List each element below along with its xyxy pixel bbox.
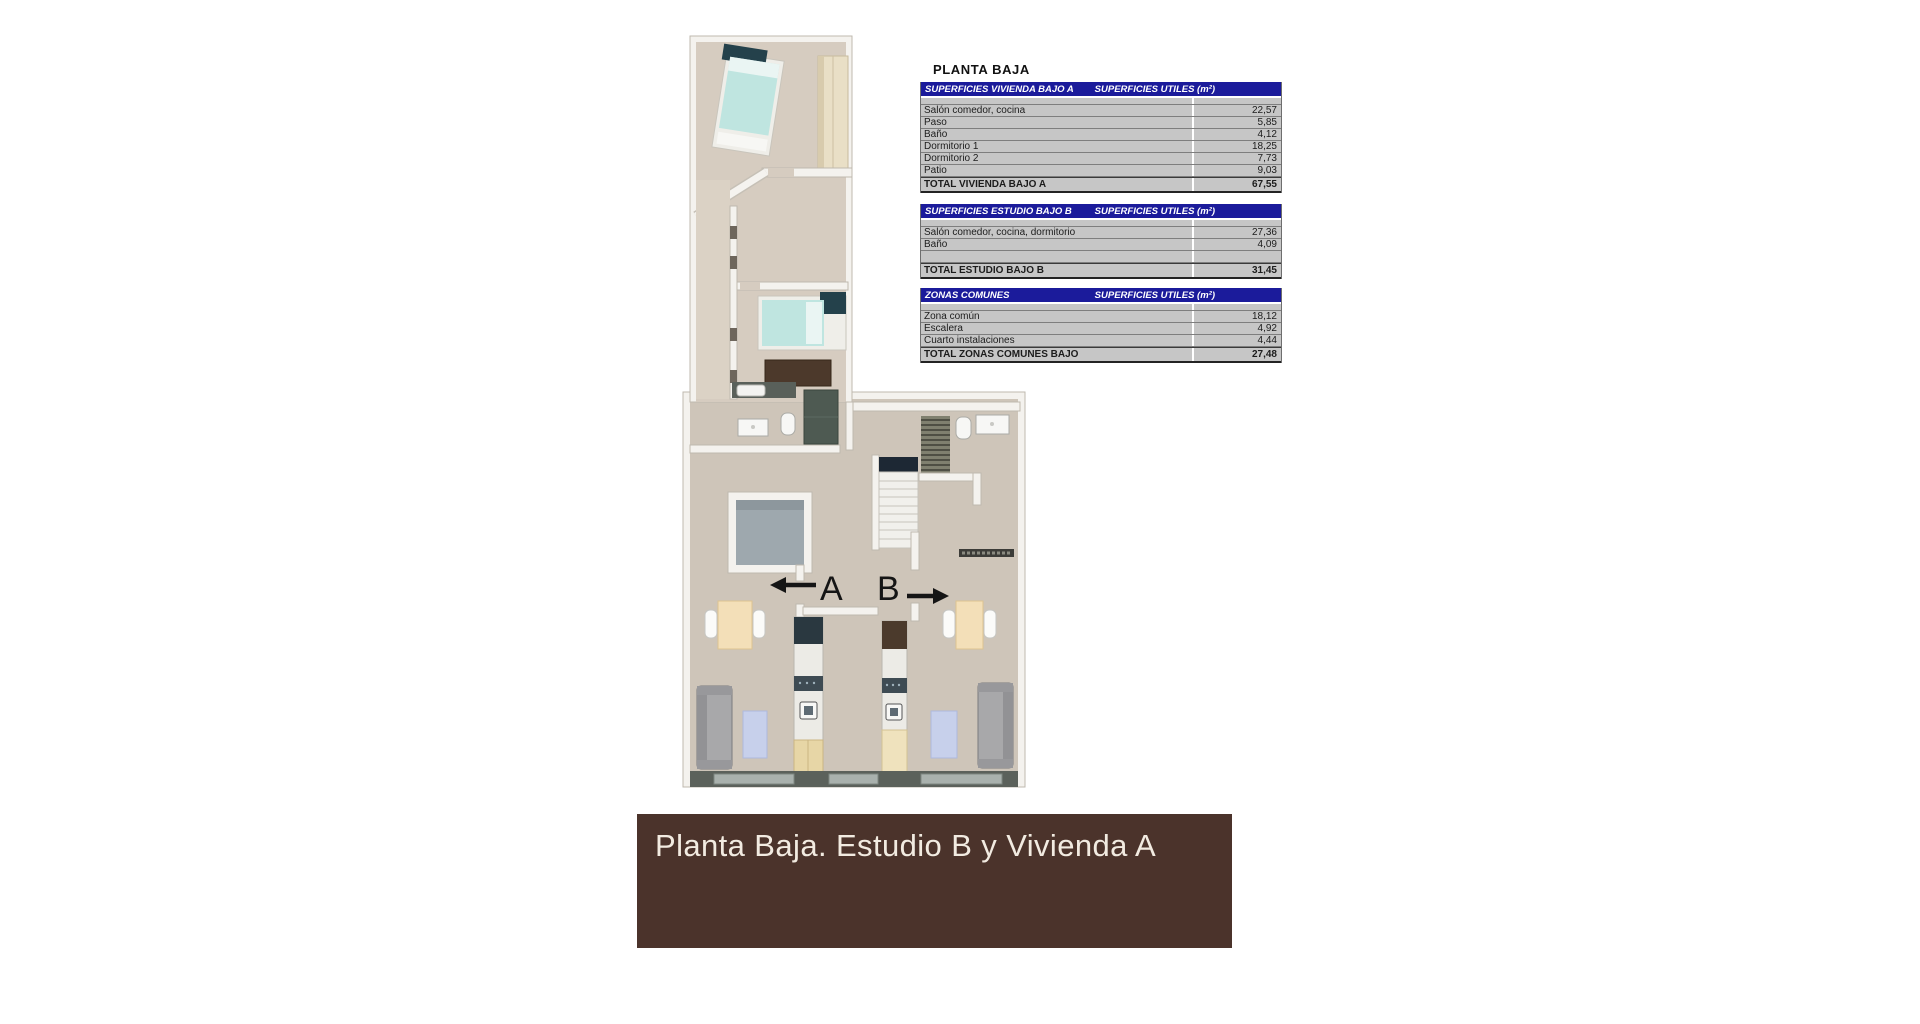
area-value: 4,44: [1192, 335, 1281, 346]
table-row: Salón comedor, cocina22,57: [921, 105, 1281, 117]
unit-b-label: B: [877, 570, 900, 608]
door-opening: [768, 168, 794, 177]
unit-a-label: A: [820, 570, 843, 608]
area-value: 22,57: [1192, 105, 1281, 116]
wall: [973, 473, 981, 505]
area-table-estudio-b: SUPERFICIES ESTUDIO BAJO B SUPERFICIES U…: [920, 204, 1282, 279]
table-header: ZONAS COMUNES SUPERFICIES UTILES (m²): [921, 288, 1281, 304]
table-row: Zona común18,12: [921, 311, 1281, 323]
wall: [911, 603, 919, 621]
dining-table-a: [718, 601, 752, 649]
total-label: TOTAL VIVIENDA BAJO A: [921, 178, 1192, 191]
total-value: 67,55: [1192, 178, 1281, 191]
area-table-vivienda-a: SUPERFICIES VIVIENDA BAJO A SUPERFICIES …: [920, 82, 1282, 193]
dining-table-b: [956, 601, 983, 649]
table-header-label: ZONAS COMUNES: [925, 290, 1009, 301]
lower-floor: [690, 399, 1018, 780]
room-label: Dormitorio 1: [921, 141, 1192, 152]
table-row: Baño4,12: [921, 129, 1281, 141]
rug-b: [931, 711, 957, 758]
window: [714, 774, 794, 784]
wall: [796, 565, 804, 581]
area-tables: SUPERFICIES VIVIENDA BAJO A SUPERFICIES …: [920, 82, 1282, 363]
area-value: 4,12: [1192, 129, 1281, 140]
door-slot: [730, 226, 737, 239]
room-label: Escalera: [921, 323, 1192, 334]
table-header: SUPERFICIES VIVIENDA BAJO A SUPERFICIES …: [921, 82, 1281, 98]
window: [921, 774, 1002, 784]
room-label: Zona común: [921, 311, 1192, 322]
total-label: TOTAL ESTUDIO BAJO B: [921, 264, 1192, 277]
area-value: 7,73: [1192, 153, 1281, 164]
wall: [846, 402, 1020, 411]
corridor-floor: [696, 180, 730, 399]
toilet: [956, 417, 971, 439]
table-header: SUPERFICIES ESTUDIO BAJO B SUPERFICIES U…: [921, 204, 1281, 220]
kitchen-b: [882, 621, 907, 778]
door-slot: [730, 256, 737, 269]
table-row: Dormitorio 27,73: [921, 153, 1281, 165]
room-label: Salón comedor, cocina, dormitorio: [921, 227, 1192, 238]
area-value: 27,36: [1192, 227, 1281, 238]
page-title: PLANTA BAJA: [933, 62, 1030, 77]
table-row: Baño4,09: [921, 239, 1281, 251]
area-table-zonas-comunes: ZONAS COMUNES SUPERFICIES UTILES (m²) Zo…: [920, 288, 1282, 363]
area-value: 9,03: [1192, 165, 1281, 176]
area-value: 5,85: [1192, 117, 1281, 128]
area-value: 18,25: [1192, 141, 1281, 152]
single-bed: [758, 292, 846, 350]
chair: [943, 610, 955, 638]
room-label: Salón comedor, cocina: [921, 105, 1192, 116]
wall: [919, 473, 981, 481]
wall: [911, 532, 919, 570]
total-row: TOTAL ESTUDIO BAJO B 31,45: [921, 263, 1281, 279]
caption-banner: Planta Baja. Estudio B y Vivienda A: [637, 814, 1232, 948]
caption-text: Planta Baja. Estudio B y Vivienda A: [655, 828, 1232, 864]
units-header: SUPERFICIES UTILES (m²): [1095, 290, 1277, 301]
sofa-a: [697, 686, 732, 769]
room-label: Patio: [921, 165, 1192, 176]
total-row: TOTAL ZONAS COMUNES BAJO 27,48: [921, 347, 1281, 363]
stair-landing: [879, 457, 918, 472]
spacer-row: [921, 98, 1281, 105]
door-slot: [730, 370, 737, 383]
chair: [984, 610, 996, 638]
wall: [846, 402, 853, 450]
patio-shade: [736, 500, 804, 510]
bathtub: [737, 385, 765, 396]
area-value: 4,09: [1192, 239, 1281, 250]
chair: [753, 610, 765, 638]
room-label: Dormitorio 2: [921, 153, 1192, 164]
table-header-label: SUPERFICIES ESTUDIO BAJO B: [925, 206, 1072, 217]
units-header: SUPERFICIES UTILES (m²): [1095, 206, 1277, 217]
kitchen-a: [794, 617, 823, 778]
table-row: Cuarto instalaciones4,44: [921, 335, 1281, 347]
room-label: Paso: [921, 117, 1192, 128]
room-label: Baño: [921, 129, 1192, 140]
door-slot: [730, 328, 737, 341]
spacer-row: [921, 220, 1281, 227]
wall: [690, 445, 840, 453]
spacer-row: [921, 304, 1281, 311]
stair-wall: [872, 455, 879, 550]
table-row: Salón comedor, cocina, dormitorio27,36: [921, 227, 1281, 239]
units-header: SUPERFICIES UTILES (m²): [1095, 84, 1277, 95]
room-label: [921, 251, 1192, 262]
chair: [705, 610, 717, 638]
table-row: Paso5,85: [921, 117, 1281, 129]
total-value: 31,45: [1192, 264, 1281, 277]
rug-a: [743, 711, 767, 758]
area-value: 4,92: [1192, 323, 1281, 334]
wardrobe-shadow: [818, 56, 824, 174]
area-value: [1192, 251, 1281, 262]
page: A B: [0, 0, 1920, 1024]
table-row: Dormitorio 118,25: [921, 141, 1281, 153]
sofa-b: [978, 683, 1013, 768]
table-row: [921, 251, 1281, 263]
area-value: 18,12: [1192, 311, 1281, 322]
sink-drain: [990, 422, 994, 426]
table-row: Patio9,03: [921, 165, 1281, 177]
total-row: TOTAL VIVIENDA BAJO A 67,55: [921, 177, 1281, 193]
sink-drain: [751, 425, 755, 429]
total-value: 27,48: [1192, 348, 1281, 361]
room-label: Cuarto instalaciones: [921, 335, 1192, 346]
table-row: Escalera4,92: [921, 323, 1281, 335]
door-opening: [740, 282, 760, 290]
total-label: TOTAL ZONAS COMUNES BAJO: [921, 348, 1192, 361]
wall: [803, 607, 878, 615]
room-label: Baño: [921, 239, 1192, 250]
toilet: [781, 413, 795, 435]
table-header-label: SUPERFICIES VIVIENDA BAJO A: [925, 84, 1074, 95]
window: [829, 774, 878, 784]
